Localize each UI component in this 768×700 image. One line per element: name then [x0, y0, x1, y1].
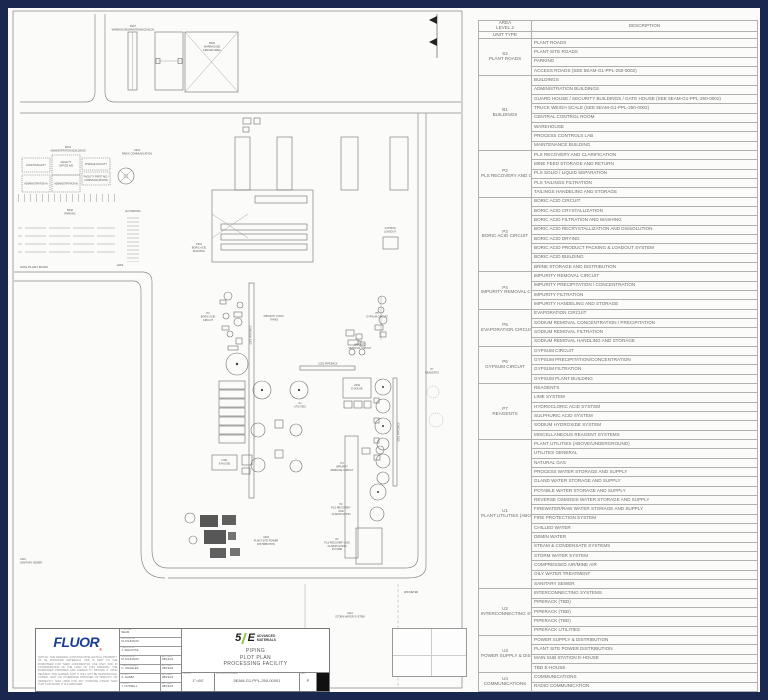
legend-description-cell: IMPURITY REMOVAL CIRCUIT [532, 272, 758, 281]
label-pls-recovery-future: P2PLS RECOVERY ANDCLARIFICATIONFUTURE [324, 538, 349, 551]
drawing-number-value: 5EAM-G1-PPL-250-00001 [216, 678, 298, 683]
reagent-tanks [374, 379, 443, 484]
legend-area-group-cell: P6GYPSUM CIRCUIT [479, 346, 532, 383]
legend-description-cell: MISCELLANEOUS REAGENT SYSTEMS [532, 430, 758, 439]
legend-description-cell: GUARD HOUSE / SECURITY BUILDINGS / GATE … [532, 94, 758, 103]
fluor-logo-text: FLUOR [53, 634, 99, 650]
label-e-house-u302: U302E-HOUSE [351, 384, 363, 391]
legend-description-cell: CHILLED WATER [532, 524, 758, 533]
legend-area-group-cell: P4IMPURITY REMOVAL CIRCUIT [479, 272, 532, 309]
label-warehouse-maintenance: B107WAREHOUSE/MAINTENANCE BLDG [112, 25, 155, 31]
title-line-2: PLOT PLAN [240, 655, 271, 661]
drawing-number-label: DRAWING NUMBER [216, 673, 298, 676]
legend-description-cell: REVERSE OSMOSIS WATER STORAGE AND SUPPLY [532, 496, 758, 505]
fluor-logo: FLUOR® [36, 629, 119, 655]
key-plan-divider-v [431, 629, 432, 676]
legend-row: S2PLANT ROADSPLANT ROADS [479, 39, 758, 48]
approval-row: SUPERVISORM.JOHNSONAPP DATE08/19/24 [120, 656, 181, 665]
approval-row: CHECKED BYJ. WALDYKE [120, 647, 181, 656]
label-ev-parking: EV PARKING [125, 210, 140, 213]
label-change-facility: CHANGE FACILITY [85, 163, 108, 166]
label-first-aid: FACILITY FIRST AID /COMMUNICATIONS [84, 176, 109, 182]
legend-header-area: AREA LEVEL 2 [479, 21, 532, 32]
legend-area-group-cell: P7REAGENTS [479, 384, 532, 440]
power-distribution-yard [185, 513, 240, 558]
radio-tower-icon [118, 168, 134, 184]
legend-description-cell: GYPSUM CIRCUIT [532, 346, 758, 355]
label-gate: GATE [117, 264, 124, 267]
label-boric-acid-building: P301BORIC ACIDBUILDING [192, 243, 207, 253]
legend-row: U4COMMUNICATIONSCOMMUNICATIONS [479, 673, 758, 682]
5e-logo-wordmark: ADVANCED MATERIALS [257, 635, 276, 643]
legend-description-cell: RADIO COMMUNICATION [532, 682, 758, 691]
legend-area-group-cell: P2PLS RECOVERY AND CLARIFICATION [479, 150, 532, 197]
legend-description-cell: STORM WATER SYSTEM [532, 552, 758, 561]
title-line-1: PIPING [246, 648, 265, 654]
legend-header-unit-type: UNIT TYPE [479, 32, 532, 39]
label-reagents: P7REAGENTS [425, 368, 439, 374]
legend-description-cell: DEMIN WATER [532, 533, 758, 542]
legend-description-cell: NATURAL GAS [532, 458, 758, 467]
boric-acid-circuit-equipment [220, 292, 248, 375]
legend-description-cell: PARKING [532, 57, 758, 66]
label-lunch-facility: LUNCH FACILITY [26, 164, 46, 167]
label-gypsum-circuit: P6GYPSUM CIRCUIT [366, 312, 388, 318]
label-administration-buildings: B101ADMINISTRATION BUILDINGS [50, 146, 86, 152]
label-plant-road: S201 PLANT ROAD [20, 265, 49, 269]
label-piperack-u201: U201 PIPERACK [398, 422, 401, 442]
approval-row: LEAD ENGINEERC. ANGELESAPP DATE08/19/24 [120, 665, 181, 674]
legend-description-cell: SODIUM REMOVAL HANDLING AND STORAGE [532, 337, 758, 346]
north-arrow-icon [429, 14, 437, 58]
label-piperack-u203: U203 PIPERACK [250, 325, 253, 345]
legend-description-cell: PROCESS WATER STORAGE AND SUPPLY [532, 468, 758, 477]
5e-advanced-materials-logo: 5 E ADVANCED MATERIALS [182, 629, 329, 648]
legend-header-description: DESCRIPTION [532, 21, 758, 32]
label-boric-acid-circuit: P3BORIC ACIDCIRCUIT [201, 312, 216, 322]
legend-description-cell: PIPERACK (TBD) [532, 598, 758, 607]
label-parking: B102PARKING [64, 209, 75, 215]
scale-label: SCALE [183, 673, 213, 676]
legend-row: P2PLS RECOVERY AND CLARIFICATIONPLS RECO… [479, 150, 758, 159]
legend-description-cell: BORIC ACID PRODUCT PACKING & LOADOUT SYS… [532, 244, 758, 253]
approval-rows: CONTRACT5EAMDESIGNED BYM.JOHNSONCHECKED … [120, 629, 182, 691]
legend-description-cell: WAREHOUSE [532, 122, 758, 131]
sheet-frame [13, 11, 462, 688]
legend-description-cell: PROCESS CONTROLS LAB [532, 132, 758, 141]
legend-description-cell: GYPSUM PLANT BUILDING [532, 374, 758, 383]
legend-description-cell: ADMINISTRATION BUILDINGS [532, 85, 758, 94]
legend-description-cell: OILY WATER TREATMENT [532, 570, 758, 579]
legend-area-group-cell: P5EVAPORATION CIRCUIT [479, 309, 532, 346]
label-plant-site-power: U303PLANT SITE POWERDISTRIBUTION [254, 536, 279, 546]
label-e-house-u301: U301E-HOUSE [219, 459, 231, 466]
legend-description-cell: BRINE STORAGE AND DISTRIBUTION [532, 262, 758, 271]
label-administration-b: ADMINISTRATION B [54, 183, 78, 186]
legend-area-group-cell: B1BUILDINGS [479, 76, 532, 151]
legend-description-cell: PLS RECOVERY AND CLARIFICATION [532, 150, 758, 159]
legend-description-cell: GYPSUM PRECIPITATION/CONCENTRATION [532, 356, 758, 365]
legend-description-cell: STEAM & CONDENSATE SYSTEMS [532, 542, 758, 551]
key-plan-divider-h [393, 655, 466, 656]
legend-area-group-cell: U1PLANT UTILITIES (ABOVE/ UNDERGROUND) [479, 440, 532, 589]
plot-plan-drawing: B107WAREHOUSE/MAINTENANCE BLDG B106WAREH… [8, 8, 464, 692]
legend-row: B1BUILDINGSBUILDINGS [479, 76, 758, 85]
warehouse-maintenance-building [128, 32, 183, 90]
legend-header-empty [532, 32, 758, 39]
title-block-black-fill [317, 673, 329, 691]
legend-description-cell: BORIC ACID FILTRATION AND WASHING [532, 216, 758, 225]
label-administration-a: ADMINISTRATION A [24, 183, 48, 186]
legend-area-group-cell: P3BORIC ACID CIRCUIT [479, 197, 532, 272]
drawing-title: PIPING PLOT PLAN PROCESSING FACILITY [182, 648, 329, 671]
legend-area-group-cell: U3POWER SUPPLY & DISTRIBUTION [479, 636, 532, 673]
screenshot-root: B107WAREHOUSE/MAINTENANCE BLDG B106WAREH… [0, 0, 768, 700]
title-line-3: PROCESSING FACILITY [223, 661, 287, 667]
approval-row: CONTRACT5EAM [120, 629, 181, 638]
area-legend-table: AREA LEVEL 2 DESCRIPTION UNIT TYPE S2PLA… [478, 20, 758, 692]
scale-cell: SCALE 1"=60' [182, 673, 215, 691]
roads [14, 14, 461, 688]
legend-area-group-cell: U2INTERCONNECTING SYSTEMS [479, 589, 532, 636]
e-house-u302 [343, 378, 371, 408]
legend-description-cell: BORIC ACID BUILDING [532, 253, 758, 262]
legend-description-cell: SANITARY SEWER [532, 580, 758, 589]
key-plan-box [392, 628, 467, 677]
legend-description-cell: HYDROCLORIC ACID SYSTEM [532, 402, 758, 411]
legend-description-cell: UTILITES GENERAL [532, 449, 758, 458]
legend-description-cell: PLANT UTILITIES (ABOVE/UNDERGROUND) [532, 440, 758, 449]
legend-description-cell: BORIC ACID CRYSTALLIZATION [532, 206, 758, 215]
legend-description-cell: IMPURITY PRECIPITATION / CONCENTRATION [532, 281, 758, 290]
5e-logo-e: E [248, 633, 255, 644]
5e-logo-slash-icon [241, 633, 247, 644]
legend-area-group-cell: U4COMMUNICATIONS [479, 673, 532, 692]
title-block-title-column: 5 E ADVANCED MATERIALS PIPING PLOT PLAN … [182, 629, 329, 691]
legend-description-cell: IMPURITY FILTRATION [532, 290, 758, 299]
utilities-tanks [251, 381, 308, 472]
legend-description-cell: PLS TAILINGS FILTRATION [532, 178, 758, 187]
label-utilities: U1UTILITIES [294, 402, 306, 408]
legend-description-cell: TAILINGS HANDELING AND STORAGE [532, 188, 758, 197]
legend-description-cell: PIPERACK (TBD) [532, 617, 758, 626]
gypsum-loadout [383, 237, 398, 249]
legend-row: U1PLANT UTILITIES (ABOVE/ UNDERGROUND)PL… [479, 440, 758, 449]
legend-description-cell: PIPERACK UTILITIES [532, 626, 758, 635]
legend-description-cell: SULPHURIC ACID SYSTEM [532, 412, 758, 421]
legend-description-cell: FIREWATER/RAW WATER STORAGE AND SUPPLY [532, 505, 758, 514]
legend-description-cell: MAINTENANCE BUILDING [532, 141, 758, 150]
pond-cells [219, 381, 245, 443]
legend-description-cell: GYPSUM FILTRATION [532, 365, 758, 374]
label-radio-communication: U401RADIO COMMUNICATION [122, 149, 152, 155]
legend-description-cell: COMMUNICATIONS [532, 673, 758, 682]
boric-acid-building [212, 190, 313, 262]
label-warehouse-fenced: B106WAREHOUSEFENCED AREA [203, 42, 221, 52]
legend-description-cell: SODIUM REMOVAL CONCENTRATION / PRECIPITA… [532, 318, 758, 327]
legend-description-cell: TBD E-HOUSE [532, 663, 758, 672]
legend-row: P5EVAPORATION CIRCUITEVAPORATION CIRCUIT [479, 309, 758, 318]
legend-description-cell: POWER SUPPLY & DISTRIBUTION [532, 636, 758, 645]
legend-description-cell: FIRE PROTECTION SYSTEM [532, 514, 758, 523]
legend-description-cell: GLAND WATER STORAGE AND SUPPLY [532, 477, 758, 486]
legend-description-cell: ACCESS ROADS (SEE 5EAM-G1-PPL-250-0002) [532, 66, 758, 75]
legend-description-cell: IMPURITY HANDELING AND STORAGE [532, 300, 758, 309]
legend-description-cell: LIME SYSTEM [532, 393, 758, 402]
legend-row: P7REAGENTSREAGENTS [479, 384, 758, 393]
drawing-number-cell: DRAWING NUMBER 5EAM-G1-PPL-250-00001 [215, 673, 300, 691]
legend-row: P3BORIC ACID CIRCUITBORIC ACID CIRCUIT [479, 197, 758, 206]
legend-row: P4IMPURITY REMOVAL CIRCUITIMPURITY REMOV… [479, 272, 758, 281]
legend-row: P6GYPSUM CIRCUITGYPSUM CIRCUIT [479, 346, 758, 355]
legend-row: U2INTERCONNECTING SYSTEMSINTERCONNECTING… [479, 589, 758, 598]
legend-description-cell: BORIC ACID DRYING [532, 234, 758, 243]
legend-description-cell: SODIUM HYDROXIDE SYSTEM [532, 421, 758, 430]
label-storm-water: U112STORM WATER SYSTEM [335, 612, 364, 618]
parking-area [18, 194, 140, 262]
legend-row: U3POWER SUPPLY & DISTRIBUTIONPOWER SUPPL… [479, 636, 758, 645]
label-piperack-u202: U202 PIPERACK [318, 363, 338, 366]
title-block-fluor-column: FLUOR® NOTICE: THIS DRAWING CONTAINS INT… [36, 629, 120, 691]
legend-description-cell: BUILDINGS [532, 76, 758, 85]
legend-description-cell: INTERCONNECTING SYSTEMS [532, 589, 758, 598]
label-impurity-removal-bottom: P4IMPURITYREMOVAL CIRCUIT [331, 462, 354, 472]
legend-description-cell: EVAPORATION CIRCUIT [532, 309, 758, 318]
rev-label: REV [301, 673, 315, 676]
legend-description-cell: MAIN SUB STATION E-HOUSE [532, 654, 758, 663]
legend-description-cell: PLANT ROADS [532, 39, 758, 48]
title-block-bottom-row: SCALE 1"=60' DRAWING NUMBER 5EAM-G1-PPL-… [182, 672, 329, 691]
pls-recovery-area [345, 436, 386, 564]
legend-description-cell: MINE FEED STORAGE AND RETURN [532, 160, 758, 169]
approval-row: DESIGNED BYM.JOHNSON [120, 638, 181, 647]
legend-description-cell: BORIC ACID CIRCUIT [532, 197, 758, 206]
confidentiality-notice: NOTICE: THIS DRAWING CONTAINS INTELLECTU… [36, 655, 119, 691]
label-gypsum-loadout: GYPSUMLOADOUT [384, 227, 397, 233]
legend-description-cell: PLS SOLID / LIQUID SEPARATION [532, 169, 758, 178]
legend-description-cell: PLANT SITE POWER DISTRIBUTION [532, 645, 758, 654]
rev-value: P [301, 678, 315, 683]
5e-logo-line2: MATERIALS [257, 638, 276, 642]
scale-value: 1"=60' [183, 678, 213, 683]
approval-row: CLIENTJ. FUSSELLAPP DATE08/19/24 [120, 683, 181, 691]
legend-description-cell: PIPERACK (TBD) [532, 608, 758, 617]
label-pls-recovery: P2PLS RECOVERYANDCLARIFICATION [331, 503, 351, 516]
title-block: FLUOR® NOTICE: THIS DRAWING CONTAINS INT… [35, 628, 330, 692]
5e-logo-five: 5 [235, 633, 241, 644]
legend-description-cell: COMPRESSED AIR/MINE AIR [532, 561, 758, 570]
area-legend-panel: AREA LEVEL 2 DESCRIPTION UNIT TYPE S2PLA… [478, 20, 757, 692]
legend-description-cell: TRUCK WEIGH SCALE (SEE 5EAM-G1-PPL-250-0… [532, 104, 758, 113]
label-facility-office: FACILITYOFFICE A/B [59, 161, 73, 167]
legend-description-cell: PLANT SITE ROADS [532, 48, 758, 57]
legend-description-cell: REAGENTS [532, 384, 758, 393]
legend-description-cell: POTABLE WATER STORAGE AND SUPPLY [532, 486, 758, 495]
label-ww-meter: WW METER [404, 591, 418, 594]
approval-row: FLUORA. HAMMAPP DATE08/19/24 [120, 674, 181, 683]
label-sanitary-sewer: U110SANITARY SEWER [20, 558, 42, 564]
legend-description-cell: CENTRAL CONTROL ROOM [532, 113, 758, 122]
rev-cell: REV P [300, 673, 317, 691]
legend-description-cell: SODIUM REMOVAL FILTRATION [532, 328, 758, 337]
registered-mark-icon: ® [99, 647, 102, 652]
warehouse-fenced-area [185, 32, 238, 92]
legend-area-group-cell: S2PLANT ROADS [479, 39, 532, 76]
label-impurity-conc-tanks: IMPURITY CONC.TANKS [264, 315, 285, 321]
shade-structures [235, 118, 408, 190]
legend-description-cell: BORIC ACID RECRYSTALLIZATION AND DISSOLU… [532, 225, 758, 234]
